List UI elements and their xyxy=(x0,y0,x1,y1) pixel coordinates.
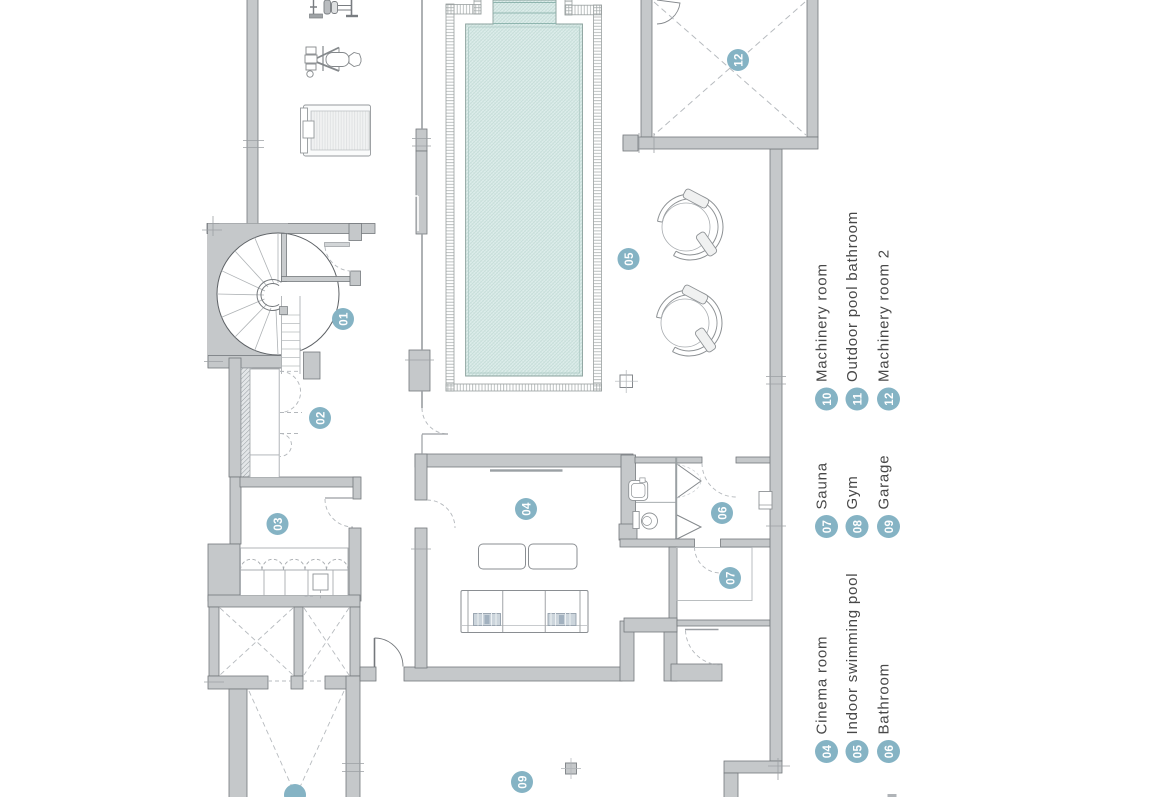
svg-text:09: 09 xyxy=(884,520,896,533)
svg-text:07: 07 xyxy=(726,571,738,584)
svg-text:02: 02 xyxy=(316,411,328,424)
svg-text:07: 07 xyxy=(822,520,834,533)
svg-text:04: 04 xyxy=(522,502,534,516)
svg-text:Bathroom: Bathroom xyxy=(876,663,893,734)
svg-text:Outdoor pool bathroom: Outdoor pool bathroom xyxy=(844,211,861,382)
svg-text:11: 11 xyxy=(852,392,864,405)
svg-text:Gym: Gym xyxy=(844,475,861,509)
svg-text:Cinema room: Cinema room xyxy=(814,636,831,735)
svg-text:Machinery room: Machinery room xyxy=(814,263,831,382)
svg-text:Indoor swimming pool: Indoor swimming pool xyxy=(844,573,861,735)
svg-text:01: 01 xyxy=(339,312,351,326)
svg-text:04: 04 xyxy=(822,745,834,759)
svg-text:10: 10 xyxy=(822,392,834,405)
svg-text:06: 06 xyxy=(718,506,730,519)
svg-text:Garage: Garage xyxy=(876,455,893,510)
svg-text:06: 06 xyxy=(884,745,896,758)
svg-text:Sauna: Sauna xyxy=(814,462,831,509)
svg-text:12: 12 xyxy=(884,392,896,405)
svg-text:12: 12 xyxy=(734,53,746,66)
svg-text:09: 09 xyxy=(518,775,530,788)
svg-text:08: 08 xyxy=(852,520,864,534)
svg-text:Machinery room 2: Machinery room 2 xyxy=(876,249,893,382)
svg-text:05: 05 xyxy=(624,252,636,266)
svg-text:05: 05 xyxy=(852,745,864,759)
svg-text:03: 03 xyxy=(273,517,285,530)
